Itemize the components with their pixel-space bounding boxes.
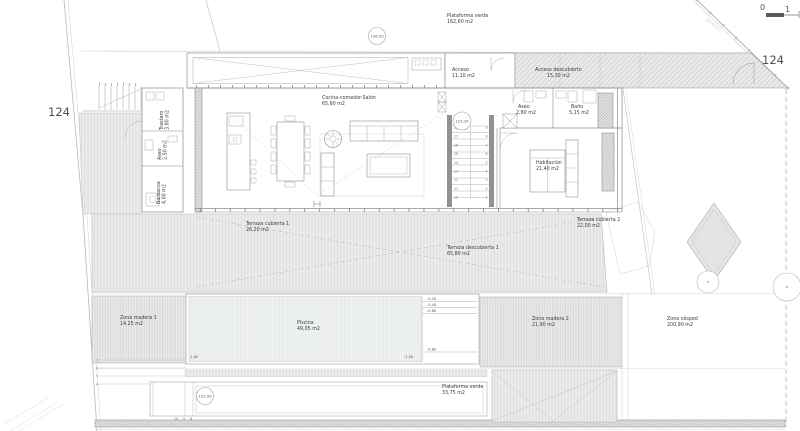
svg-text:16: 16 (454, 143, 458, 147)
west-green-strip (79, 113, 142, 214)
svg-text:7: 7 (485, 143, 487, 147)
label-barbacoa: Barbacoa4,00 m2 (156, 181, 168, 204)
scale-zero: 0 (760, 3, 765, 12)
scale-bar: 0 1 (760, 3, 799, 18)
shaft-boxes (438, 92, 446, 112)
garden-features (606, 202, 800, 301)
svg-text:4: 4 (485, 170, 487, 174)
kitchen-island (227, 113, 256, 190)
svg-text:7: 7 (96, 359, 98, 363)
toilet-icon (568, 91, 577, 102)
svg-text:17: 17 (454, 135, 458, 139)
chairs-left (271, 126, 276, 174)
level-mid: 123,35 (455, 119, 469, 124)
parcel-number-right: 124 (762, 53, 784, 67)
svg-text:6: 6 (485, 152, 487, 156)
parcel-number-left: 124 (48, 105, 70, 119)
rug (320, 134, 424, 196)
label-habitacion: Habitación21,40 m2 (536, 159, 562, 172)
svg-text:15: 15 (454, 152, 458, 156)
depth-100: -1,00 (404, 355, 414, 359)
svg-text:4: 4 (96, 383, 98, 387)
depth-080: -0,80 (427, 348, 437, 352)
installation-shaft (598, 93, 613, 128)
staircase: 18 17 16 15 14 13 12 11 10 9 8 7 6 5 4 3… (438, 92, 494, 207)
sink-icon (536, 91, 546, 98)
bathroom (556, 90, 613, 128)
floor-plan-drawing: 18 17 16 15 14 13 12 11 10 9 8 7 6 5 4 3… (0, 0, 800, 431)
east-shaft-column (602, 133, 614, 191)
chairs-right (305, 126, 310, 174)
svg-text:8: 8 (190, 417, 192, 421)
boundary-dimension: 24.43.57 (705, 17, 722, 33)
level-upper: 126,00 (370, 34, 384, 39)
svg-text:9: 9 (183, 417, 185, 421)
svg-text:13: 13 (454, 170, 458, 174)
svg-text:3: 3 (485, 178, 487, 182)
label-trastero: Trastero3,80 m2 (159, 110, 171, 131)
dining-table (271, 116, 310, 187)
svg-text:8: 8 (485, 135, 487, 139)
stools (251, 160, 256, 183)
sink-icon (556, 91, 566, 98)
shower-icon (583, 90, 596, 103)
depth-020: -0,20 (427, 297, 437, 301)
svg-text:5: 5 (485, 161, 487, 165)
label-cocina: Cocina-comedor-Salón65,60 m2 (322, 94, 376, 107)
label-bano: Baño5,15 m2 (569, 104, 589, 116)
depth-040: -0,40 (427, 303, 437, 307)
svg-text:9: 9 (485, 126, 487, 130)
wood-deck-2 (480, 297, 622, 367)
lounge-area (228, 112, 445, 207)
scale-one: 1 (785, 5, 790, 14)
svg-text:10: 10 (174, 417, 178, 421)
label-plataforma-top: Plataforma verde162,60 m2 (447, 13, 488, 25)
roof-projection-line (228, 112, 445, 196)
west-wall-shaft (195, 88, 202, 212)
depth-060: -0,60 (427, 309, 437, 313)
stair-wall-right (489, 115, 494, 207)
deck-steps (99, 360, 186, 384)
svg-text:12: 12 (454, 178, 458, 182)
scale-bar-segment (766, 13, 784, 17)
svg-text:14: 14 (454, 161, 458, 165)
svg-text:6: 6 (96, 367, 98, 371)
label-terraza-cubierta-2: Terraza cubierta 222,00 m2 (576, 217, 620, 229)
toilet-icon (524, 91, 533, 102)
bedroom-door-arc (500, 133, 517, 150)
sideboard (321, 153, 334, 196)
north-roof-band (187, 53, 445, 88)
svg-text:2: 2 (485, 187, 487, 191)
floor-plan-canvas: 18 17 16 15 14 13 12 11 10 9 8 7 6 5 4 3… (0, 0, 800, 431)
landscape-diamond (687, 203, 741, 281)
svg-text:11: 11 (454, 187, 458, 191)
level-lower: 122,00 (198, 394, 212, 399)
svg-text:10: 10 (454, 196, 458, 200)
wood-deck-1 (92, 296, 186, 363)
section-marker (314, 201, 320, 207)
depth-180: -1,80 (189, 355, 199, 359)
svg-text:5: 5 (96, 375, 98, 379)
coffee-table (367, 154, 410, 177)
wardrobe (566, 140, 578, 197)
exterior-stairs (83, 85, 142, 112)
svg-text:1: 1 (485, 196, 487, 200)
label-zona-cesped: Zona césped200,90 m2 (667, 315, 698, 328)
stair-wall-left (447, 115, 452, 207)
label-aseo-planta: Aseo2,80 m2 (516, 104, 536, 116)
lower-platform (150, 370, 617, 422)
